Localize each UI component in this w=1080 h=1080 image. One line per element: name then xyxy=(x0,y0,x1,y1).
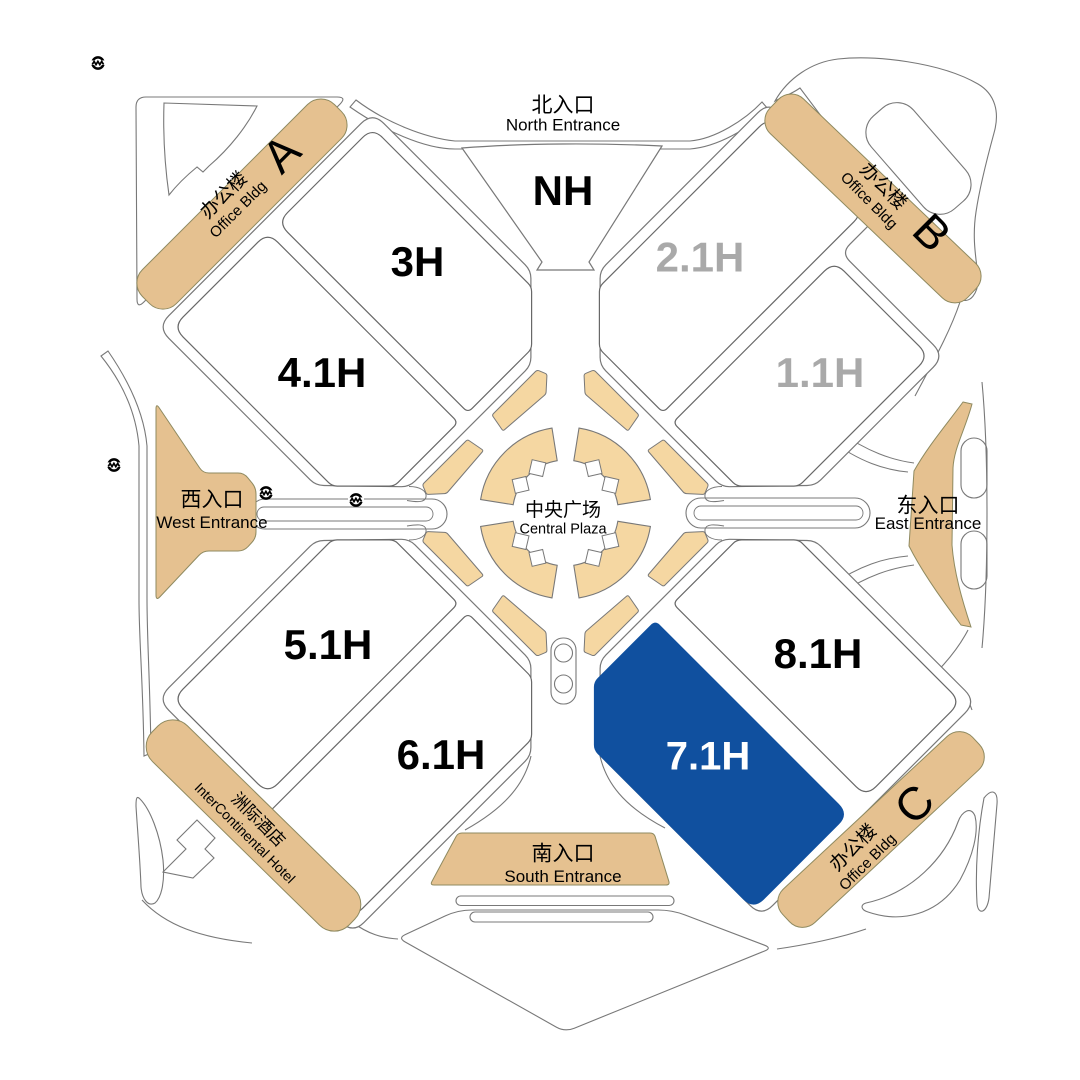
svg-text:北入口: 北入口 xyxy=(532,94,595,117)
svg-text:NH: NH xyxy=(533,167,594,214)
svg-text:East Entrance: East Entrance xyxy=(875,514,982,533)
svg-text:中央广场: 中央广场 xyxy=(525,499,601,521)
svg-text:West Entrance: West Entrance xyxy=(156,513,267,532)
svg-text:8.1H: 8.1H xyxy=(774,630,863,677)
svg-text:6.1H: 6.1H xyxy=(397,731,486,778)
svg-text:4.1H: 4.1H xyxy=(278,349,367,396)
svg-text:7.1H: 7.1H xyxy=(666,735,751,779)
svg-text:1.1H: 1.1H xyxy=(776,349,865,396)
svg-text:5.1H: 5.1H xyxy=(284,621,373,668)
svg-text:Central Plaza: Central Plaza xyxy=(519,522,607,538)
svg-text:South Entrance: South Entrance xyxy=(504,867,621,886)
svg-text:North Entrance: North Entrance xyxy=(506,116,620,135)
svg-text:3H: 3H xyxy=(391,238,445,285)
svg-text:南入口: 南入口 xyxy=(532,843,595,866)
svg-text:2.1H: 2.1H xyxy=(656,234,745,281)
svg-text:西入口: 西入口 xyxy=(181,489,244,512)
